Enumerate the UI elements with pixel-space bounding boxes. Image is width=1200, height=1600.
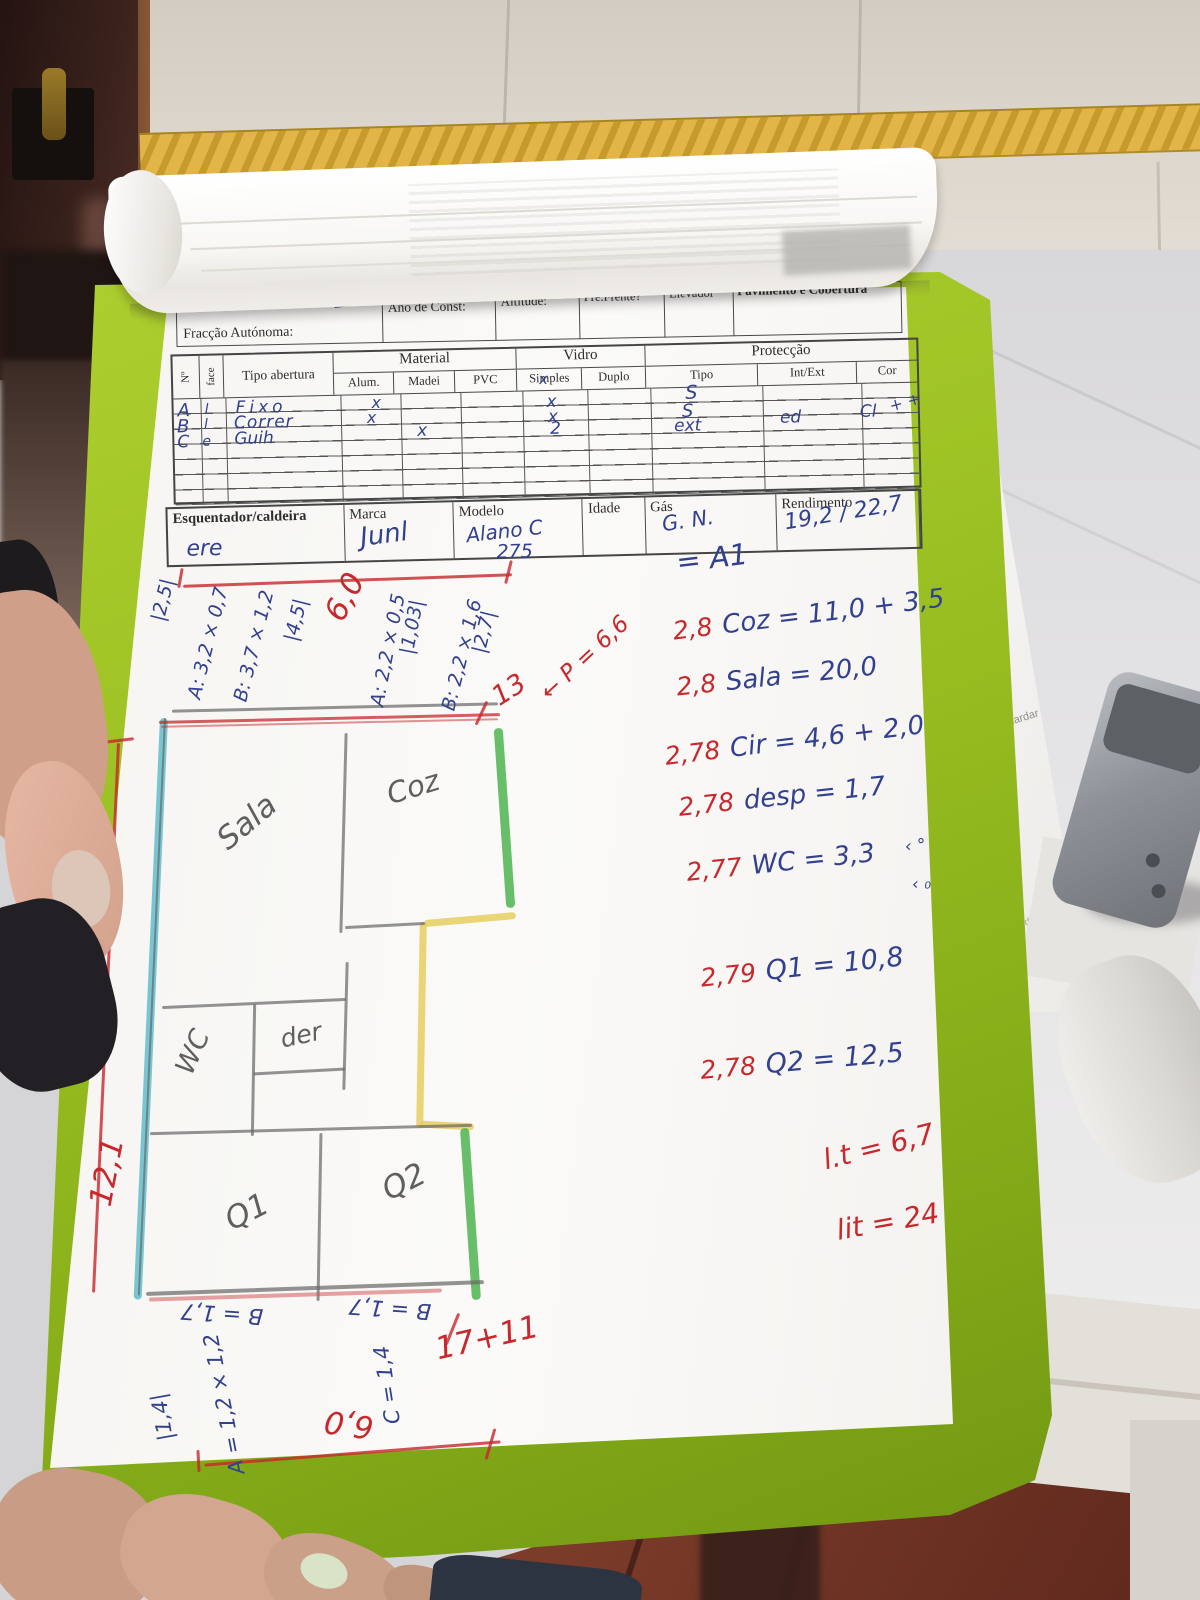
col-label: face xyxy=(205,367,217,386)
cell-value-row-c-madei: x xyxy=(417,421,428,441)
field-label: Fracção Autónoma: xyxy=(183,325,293,343)
cell-value-row-a-simples: x xyxy=(539,370,548,388)
col-label-simples: Simples xyxy=(517,368,583,390)
col-numero: Nº xyxy=(172,356,199,399)
cell-value-row-b-face: l xyxy=(204,417,208,433)
cell-value-row-c-prot: ext xyxy=(674,415,702,436)
col-label-alum: Alum. xyxy=(334,372,395,394)
heater-label: Esquentador/caldeira xyxy=(167,505,343,528)
windows-table: Nº face Tipo abertura Material Alum. Mad… xyxy=(170,338,921,505)
eq-coef: 2,78 xyxy=(677,787,735,822)
wc-extra-mark: ‹ ° xyxy=(904,835,926,857)
col-tipo-abertura: Tipo abertura xyxy=(224,353,335,397)
device-panel xyxy=(1101,681,1200,776)
table-leg xyxy=(1130,1420,1200,1600)
tile-grout-line xyxy=(503,0,510,125)
group-vidro: Vidro Simples Duplo xyxy=(516,346,646,391)
idade-label: Idade xyxy=(583,498,645,518)
heater-idade-cell: Idade xyxy=(583,498,647,556)
col-label: Tipo abertura xyxy=(242,366,315,384)
col-label: Nº xyxy=(180,371,192,383)
kitchen-clipboard-photo: ambos guardar MobiDedPrazCert Fracção Au… xyxy=(0,0,1200,1600)
col-label-int-ext: Int/Ext xyxy=(758,362,858,385)
vidro-subcols: Simples Duplo xyxy=(517,366,645,391)
tile-grout-line xyxy=(857,0,862,120)
device-hole xyxy=(1150,882,1167,899)
col-label-prot-tipo: Tipo xyxy=(646,364,759,388)
eq-coef: 2,77 xyxy=(685,852,743,887)
cell-value-row-c-intext: ed xyxy=(780,407,802,427)
cell-value-row-b-alum: x xyxy=(367,408,377,427)
eq-coef: 2,8 xyxy=(671,612,714,646)
col-label-madei: Madei xyxy=(394,371,455,393)
heater-marca-value: Junl xyxy=(358,517,409,553)
cell-value-row-c-tipo: Guih xyxy=(234,428,274,449)
eq-coef: 2,78 xyxy=(699,1051,757,1085)
material-subcols: Alum. Madei PVC xyxy=(334,369,516,395)
eq-coef: 2,78 xyxy=(663,735,722,771)
group-material: Material Alum. Madei PVC xyxy=(333,349,517,395)
col-label-duplo: Duplo xyxy=(582,367,645,389)
dim-text-6-0-bottom: 6,0 xyxy=(322,1403,376,1446)
eq-coef: 2,79 xyxy=(699,958,757,993)
cell-value-row-a-face: l xyxy=(204,402,208,418)
device-hole xyxy=(1144,852,1161,869)
heater-modelo-value-line2: 275 xyxy=(496,540,533,563)
eq-coef: 2,8 xyxy=(675,668,718,701)
heater-value: ere xyxy=(186,536,223,562)
showthrough-text-noise xyxy=(408,168,841,276)
cell-value-row-c-face: e xyxy=(202,434,211,450)
showthrough-smudge xyxy=(782,225,912,276)
col-label-cor: Cor xyxy=(857,361,917,383)
cell-value-row-c-n: C xyxy=(177,432,189,452)
col-label-pvc: PVC xyxy=(455,370,517,392)
cell-value-row-c-simples: 2 xyxy=(550,419,561,439)
col-face: face xyxy=(199,355,225,398)
shelf-bottle xyxy=(42,68,66,140)
group-proteccao: Protecção Tipo Int/Ext Cor xyxy=(645,340,917,388)
cell-value-row-c-cor: Cl xyxy=(860,402,877,422)
wc-extra-mark: ‹ ₀ xyxy=(911,873,932,895)
